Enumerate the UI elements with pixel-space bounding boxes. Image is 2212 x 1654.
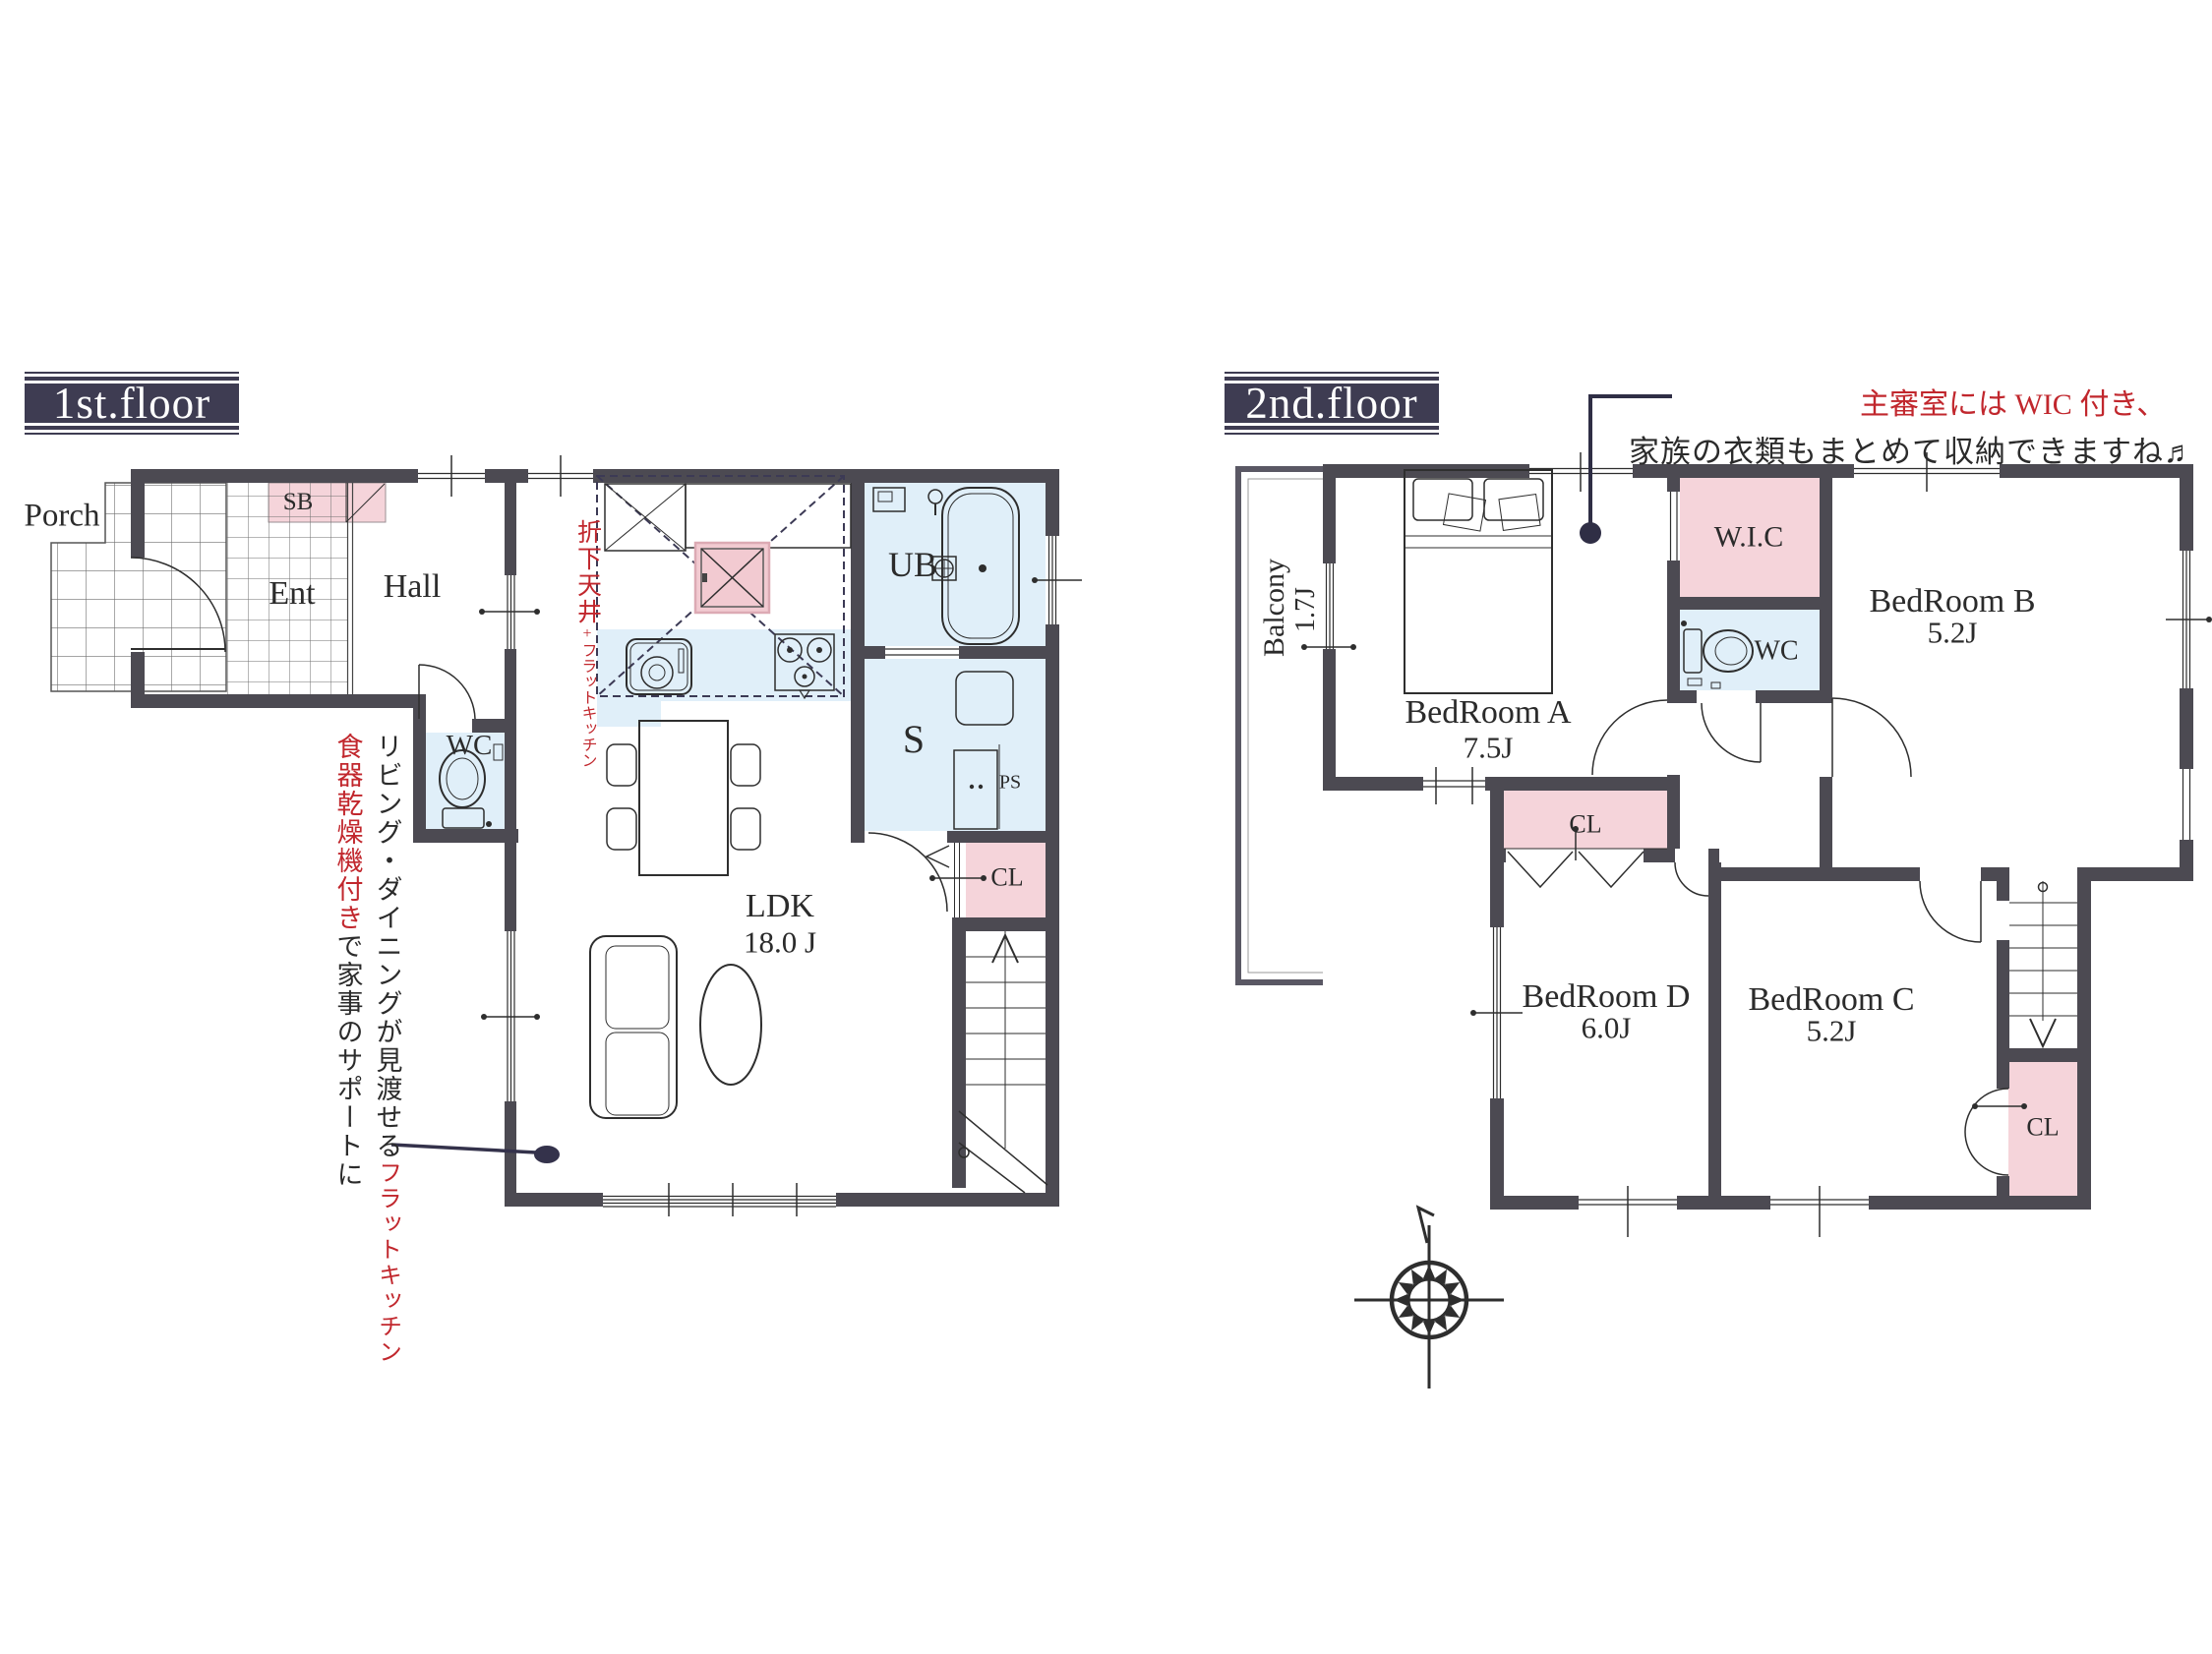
porch-label: Porch [25,500,100,534]
bedroom-a-door-icon [1592,700,1667,775]
bedroom-c-door-icon [1920,881,1981,942]
bedroom-a-label: BedRoom A [1405,695,1571,731]
stairs-up-icon [959,931,1047,1193]
ldk-label: LDK [746,889,814,924]
bedroom-c-size-label: 5.2J [1807,1016,1857,1048]
side-note-col2: 食器乾燥機付きで家事のサポートに [334,733,361,1189]
bedroom-d-label: BedRoom D [1523,979,1691,1015]
bedroom-d-door-icon [1675,862,1708,896]
ent-label: Ent [269,576,315,612]
wic-note-red: 主審室には WIC 付き、 [1860,380,2166,423]
bedroom-c-label: BedRoom C [1748,982,1914,1018]
wc2-label: WC [1754,636,1798,665]
wc2-door-icon [1702,703,1761,762]
wic-note-black: 家族の衣類もまとめて収納できますね♬ [1629,427,2195,471]
kitchen-note: 折下天井+フラットキッチン [575,519,600,768]
closet-corner-label: CL [2026,1113,2059,1140]
skylight-icon [695,543,769,613]
closet-mid-label: CL [1569,810,1601,837]
stairs-down-icon [2009,881,2077,1046]
floor1-leader-line [391,1145,560,1163]
hall-label: Hall [384,569,442,605]
refrigerator-space-icon [605,484,686,551]
dining-table-icon [607,721,760,875]
storage-label: S [903,719,925,760]
floor2-title: 2nd.floor [1225,372,1439,435]
bedroom-b-door-icon [1832,698,1911,777]
ldk-size-label: 18.0 J [744,927,816,960]
bedroom-b-label: BedRoom B [1869,584,2035,620]
bedroom-d-size-label: 6.0J [1582,1013,1632,1045]
balcony-label: Balcony [1258,559,1291,657]
floorplan-page: 1st.floor 2nd.floor Porch SB Ent Hall WC… [0,0,2212,1654]
bedroom-b-size-label: 5.2J [1928,618,1978,650]
balcony-size-label: 1.7J [1290,587,1322,632]
ps-label: PS [999,773,1021,794]
ottoman-icon [700,965,761,1085]
floor2-doors [1504,698,2027,1175]
cupboard-icon [686,484,851,548]
wic-label: W.I.C [1714,521,1784,553]
ub-label: UB [888,547,937,584]
balcony [1238,469,1323,982]
wc-label: WC [447,731,493,760]
floor1-title: 1st.floor [25,372,239,435]
north-arrow-icon [1418,1208,1434,1243]
closet-corner-door-icon [1965,1089,2008,1132]
storage-area [865,659,1046,831]
bedroom-a-size-label: 7.5J [1464,733,1514,765]
floorplan-canvas [0,0,2212,1654]
compass-icon [1354,1208,1504,1388]
storage-door-icon [868,833,947,912]
bed-icon [1405,470,1552,693]
closet1-label: CL [990,863,1023,890]
wc-door-icon [419,665,475,719]
shoe-box-label: SB [283,490,314,515]
sofa-icon [590,936,677,1118]
side-note-col1: リビング・ダイニングが見渡せるフラットキッチン [374,733,400,1365]
